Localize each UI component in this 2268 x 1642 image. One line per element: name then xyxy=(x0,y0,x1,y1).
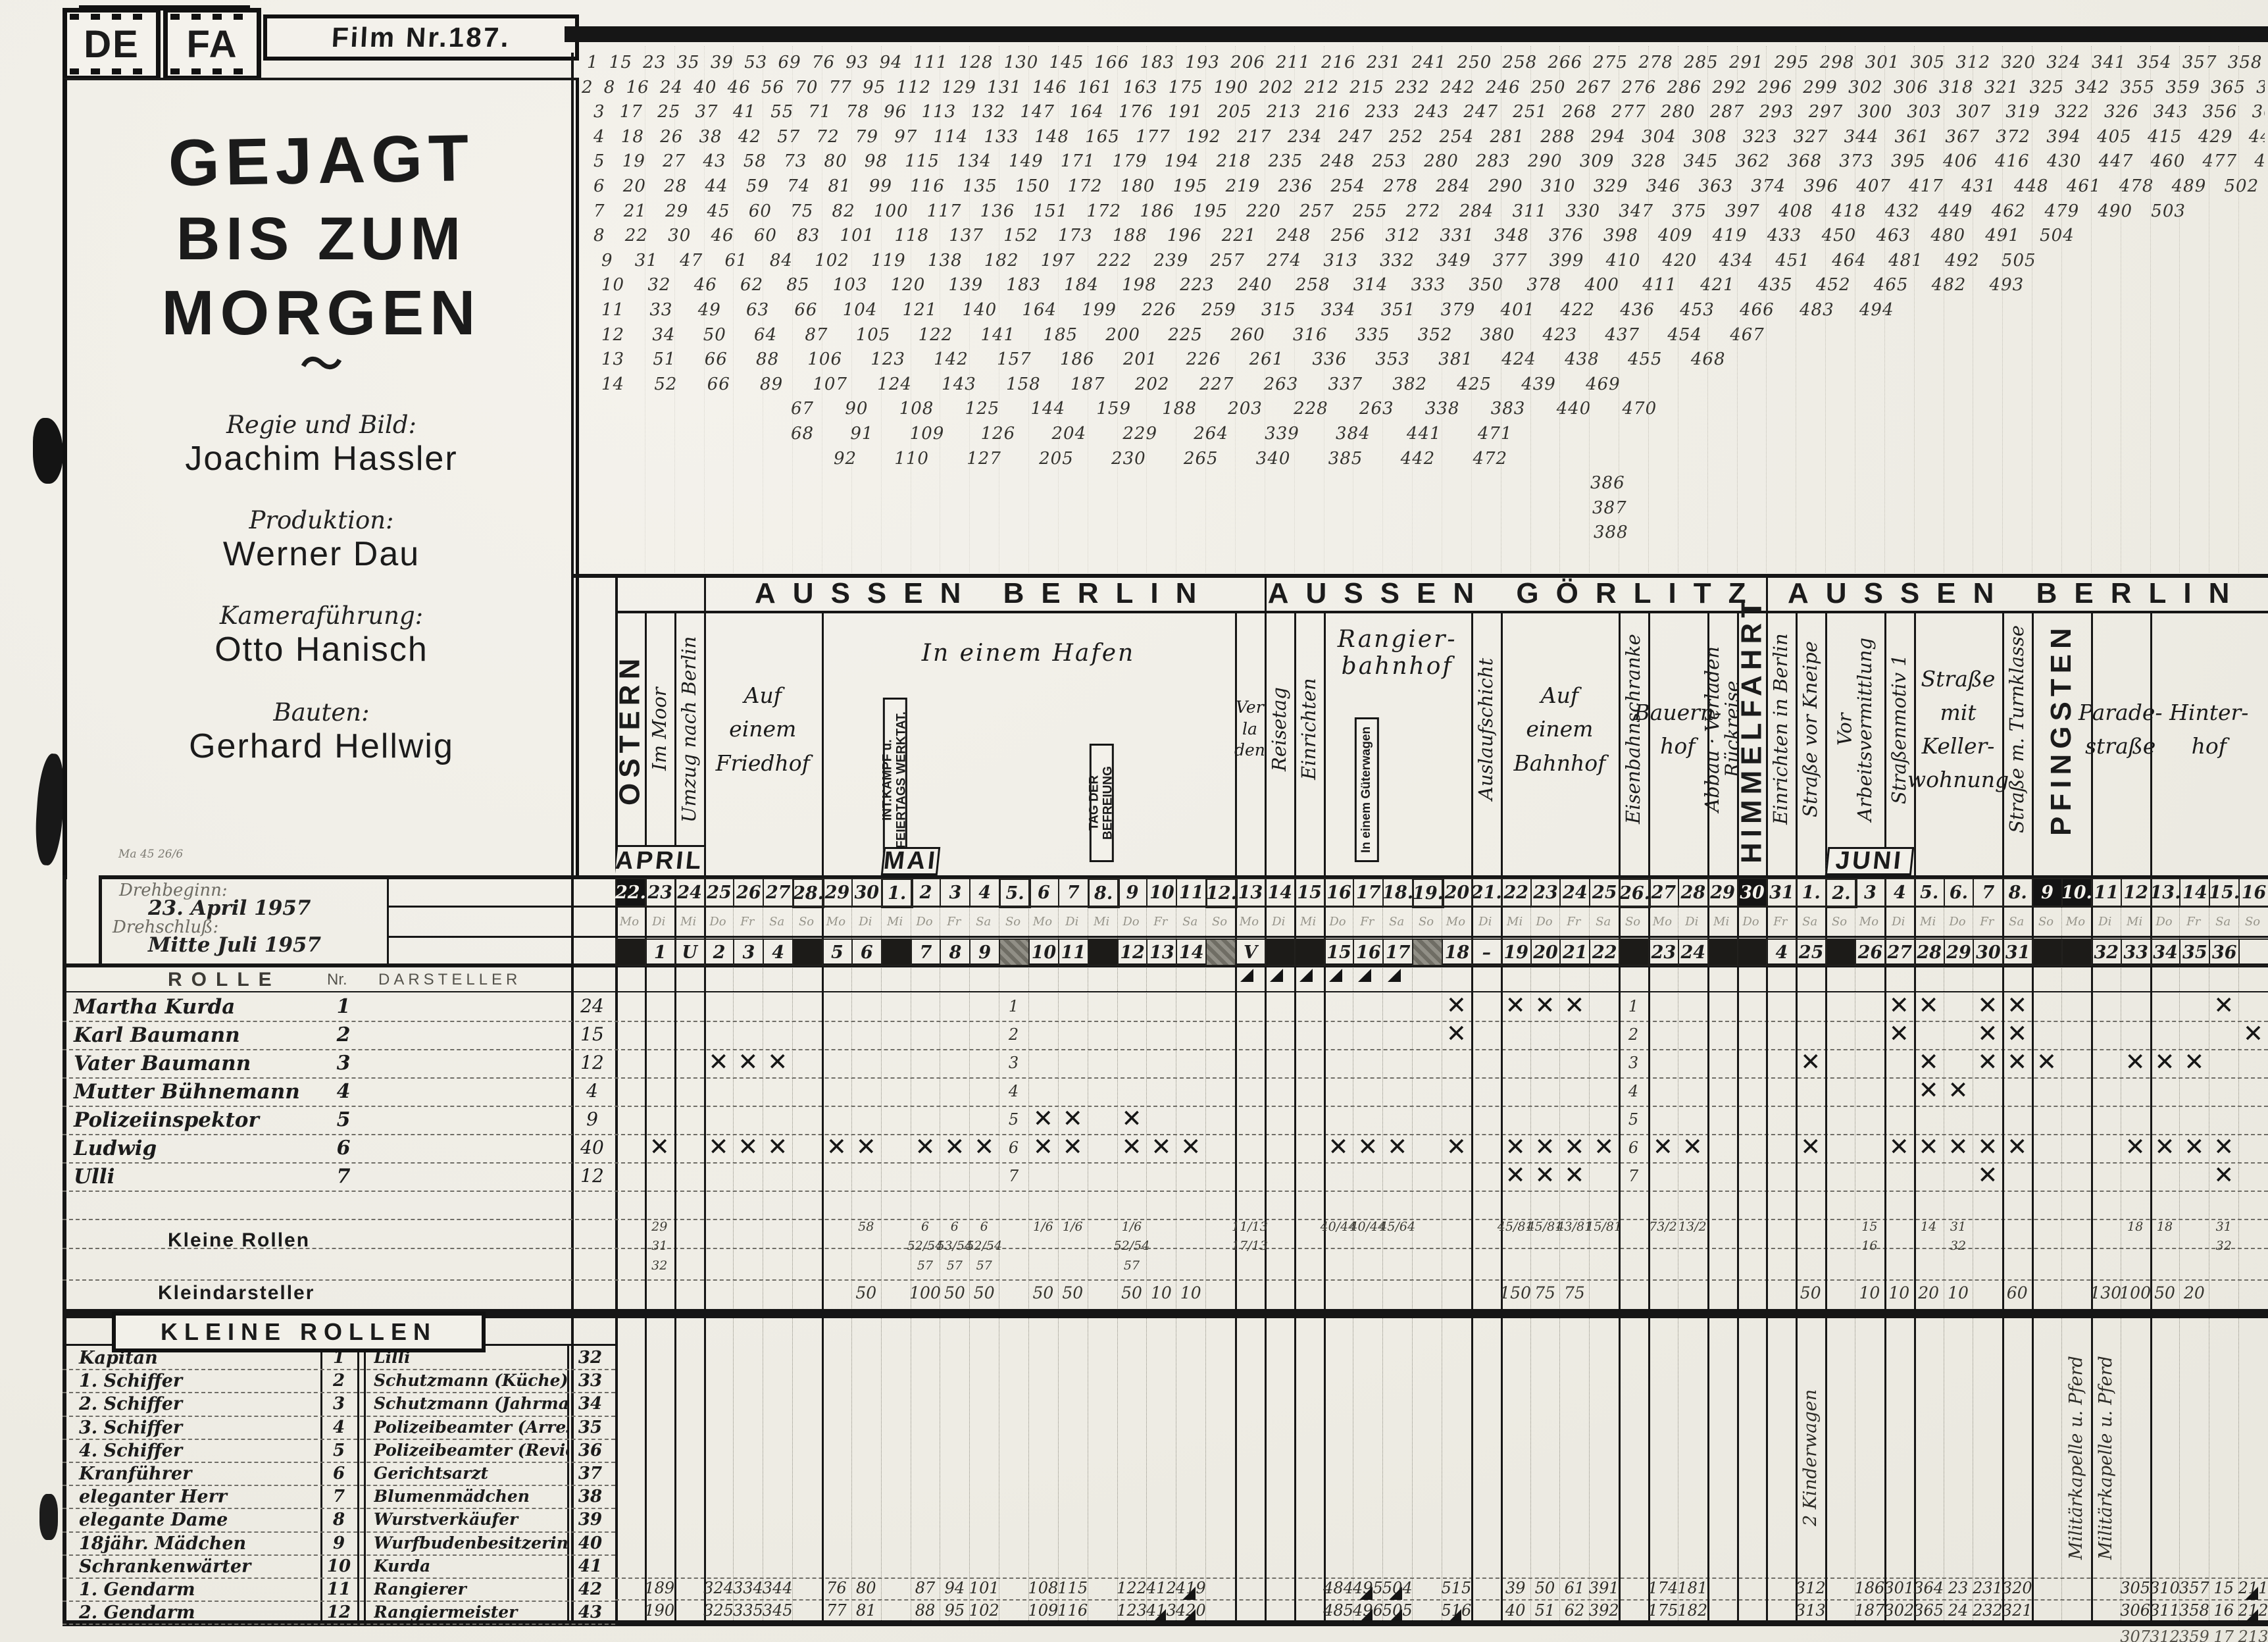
wochentag-cell: Mo xyxy=(615,908,643,935)
small-role-number: 32 xyxy=(570,1348,611,1368)
presence-x-mark: ✕ xyxy=(2209,1135,2238,1159)
grid-day-line xyxy=(1205,46,1207,573)
scene-column-label: Im Moor xyxy=(645,613,674,845)
presence-x-mark: ✕ xyxy=(911,1135,940,1159)
list-row-line xyxy=(63,1554,615,1556)
presence-x-mark: ✕ xyxy=(1914,1078,1944,1102)
role-row-line xyxy=(63,1106,2268,1107)
small-role-name: 1. Gendarm xyxy=(79,1579,316,1600)
bottom-schedule-cell: 320 xyxy=(1997,1579,2037,1597)
drehtag-cell xyxy=(1412,938,1443,966)
scene-inner-box-label: TAG DER BEFREIUNG xyxy=(1090,744,1114,862)
schedule-mark-triangle xyxy=(1359,1609,1373,1622)
schedule-mark-triangle xyxy=(2245,1609,2258,1622)
grid-day-line xyxy=(1353,877,1354,1624)
presence-x-mark: ✕ xyxy=(2002,1021,2032,1046)
presence-x-mark: ✕ xyxy=(733,1050,763,1074)
wochentag-cell: Sa xyxy=(1796,908,1824,935)
role-number: 5 xyxy=(327,1108,360,1131)
kalendertag-cell: 31 xyxy=(1766,878,1797,907)
presence-x-mark: ✕ xyxy=(1884,993,1914,1017)
role-row-line xyxy=(63,1021,2268,1022)
grid-day-line xyxy=(1058,46,1059,573)
wochentag-cell: Sa xyxy=(1589,908,1617,935)
scene-column-label: Straße vor Kneipe xyxy=(1796,613,1825,845)
kalendertag-cell: 3 xyxy=(940,878,970,907)
shot-number-row: 14 52 66 89 107 124 143 158 187 202 227 … xyxy=(601,374,1621,394)
scene-column-label: Auf einem Friedhof xyxy=(704,613,822,845)
drehtag-cell: 10 xyxy=(1028,938,1059,966)
presence-x-mark: ✕ xyxy=(2002,993,2032,1017)
grid-day-line xyxy=(1855,46,1856,573)
grid-day-line xyxy=(1442,877,1443,1624)
wochentag-cell: Fr xyxy=(1146,908,1174,935)
kleine-rollen-cell: 31 32 xyxy=(2205,1218,2242,1256)
grid-day-line xyxy=(645,46,646,573)
presence-x-mark: ✕ xyxy=(1028,1106,1058,1131)
rule xyxy=(99,875,102,966)
drehtag-cell xyxy=(1619,938,1650,966)
kalendertag-cell: 29 xyxy=(1707,878,1738,907)
presence-x-mark: ✕ xyxy=(969,1135,999,1159)
role-index-number: 2 xyxy=(1619,1025,1648,1044)
vertical-note: 2 Kinderwagen xyxy=(1798,1349,1823,1566)
drehtag-cell: 31 xyxy=(2002,938,2033,966)
kalendertag-cell: 25 xyxy=(1589,878,1620,907)
scene-column-label: Rangier- bahnhof xyxy=(1324,613,1471,692)
kalendertag-cell: 16 xyxy=(1324,878,1355,907)
drehtag-cell: 6 xyxy=(851,938,882,966)
small-role-name: Polizeibeamter (Arrestzelle) xyxy=(374,1418,568,1437)
presence-x-mark: ✕ xyxy=(2209,993,2238,1017)
bottom-schedule-cell: 313 xyxy=(1790,1601,1830,1620)
presence-x-mark: ✕ xyxy=(1353,1135,1382,1159)
wochentag-cell: Di xyxy=(1265,908,1293,935)
kalendertag-cell: 25 xyxy=(704,878,735,907)
drehtag-cell: 9 xyxy=(969,938,1000,966)
list-row-line xyxy=(63,1369,615,1370)
wochentag-cell: Do xyxy=(911,908,939,935)
drehtag-cell: 14 xyxy=(1176,938,1207,966)
kleindarsteller-cell: 60 xyxy=(2000,1283,2034,1302)
drehtag-cell: 21 xyxy=(1559,938,1590,966)
small-role-name: Wurfbudenbesitzerin xyxy=(374,1533,568,1552)
kalendertag-cell: 19. xyxy=(1412,878,1444,908)
small-role-number: 37 xyxy=(570,1464,611,1483)
role-index-number: 6 xyxy=(1619,1139,1648,1157)
drehtag-cell: 17 xyxy=(1382,938,1413,966)
kleindarsteller-cell: 50 xyxy=(1793,1283,1828,1302)
bottom-schedule-cell: 190 xyxy=(640,1601,680,1620)
shot-number-row: 1 15 23 35 39 53 69 76 93 94 111 128 130… xyxy=(587,53,2265,72)
drehtag-cell: U xyxy=(674,938,705,966)
kalendertag-cell: 30 xyxy=(851,878,882,907)
presence-x-mark: ✕ xyxy=(1559,1163,1589,1187)
kalendertag-cell: 5. xyxy=(1914,878,1945,907)
kalendertag-cell: 24 xyxy=(1559,878,1590,907)
presence-x-mark: ✕ xyxy=(1530,993,1560,1017)
wochentag-cell: Mo xyxy=(1855,908,1883,935)
grid-day-line xyxy=(2179,46,2180,573)
kalendertag-cell: 3 xyxy=(1855,878,1886,907)
bottom-schedule-cell: 116 xyxy=(1053,1601,1093,1620)
drehtag-cell: 8 xyxy=(940,938,970,966)
kleindarsteller-cell: 50 xyxy=(967,1283,1001,1302)
role-index-number: 4 xyxy=(999,1082,1028,1100)
scene-inner-box-label: In einem Güterwagen xyxy=(1355,717,1379,862)
drehtag-cell xyxy=(1265,938,1296,966)
role-number: 3 xyxy=(327,1052,360,1075)
small-role-number: 33 xyxy=(570,1371,611,1391)
role-shooting-days-count: 12 xyxy=(572,1052,612,1073)
schedule-mark-triangle xyxy=(1389,1609,1402,1622)
grid-day-line xyxy=(881,877,882,1624)
wochentag-cell: So xyxy=(2032,908,2060,935)
kalendertag-cell: 8. xyxy=(2002,878,2033,907)
role-name: Polizeiinspektor xyxy=(74,1108,324,1132)
presence-x-mark: ✕ xyxy=(940,1135,969,1159)
grid-day-line xyxy=(1501,46,1502,573)
wochentag-cell: Do xyxy=(1117,908,1146,935)
list-row-line xyxy=(63,1439,615,1440)
list-row-line xyxy=(63,1578,615,1579)
drehtag-cell xyxy=(2032,938,2063,966)
small-role-number: 11 xyxy=(322,1579,356,1599)
scene-column-label: Straße m. Turnklasse xyxy=(2002,613,2032,845)
section-band-label: AUSSEN BERLIN xyxy=(1766,577,2268,611)
presence-x-mark: ✕ xyxy=(2179,1050,2209,1074)
wochentag-cell: So xyxy=(999,908,1027,935)
presence-x-mark: ✕ xyxy=(1559,993,1589,1017)
wochentag-cell: Mi xyxy=(881,908,909,935)
kalendertag-cell: 8. xyxy=(1088,878,1120,908)
kleindarsteller-cell: 10 xyxy=(1173,1283,1208,1302)
shot-number-row: 13 51 66 88 106 123 142 157 186 201 226 … xyxy=(601,349,1726,369)
presence-x-mark: ✕ xyxy=(1117,1106,1147,1131)
role-index-number: 1 xyxy=(1619,997,1648,1015)
grid-day-line xyxy=(2032,46,2033,573)
grid-day-line xyxy=(1088,877,1089,1624)
grid-day-line xyxy=(763,46,764,573)
drehtag-cell: 26 xyxy=(1855,938,1886,966)
wochentag-cell: Fr xyxy=(1353,908,1381,935)
presence-x-mark: ✕ xyxy=(822,1135,851,1159)
grid-day-line xyxy=(1530,877,1532,1624)
role-name: Ludwig xyxy=(74,1137,324,1160)
schedule-mark-triangle xyxy=(1299,969,1313,982)
grid-day-line xyxy=(1796,46,1797,573)
drehtag-cell: 32 xyxy=(2091,938,2122,966)
role-index-number: 4 xyxy=(1619,1082,1648,1100)
wochentag-cell: Sa xyxy=(2209,908,2237,935)
wochentag-cell: So xyxy=(1412,908,1440,935)
small-role-name: 2. Schiffer xyxy=(79,1394,316,1414)
rule xyxy=(357,1344,359,1620)
kalendertag-cell: 26 xyxy=(733,878,764,907)
drehtag-cell: 18 xyxy=(1442,938,1473,966)
grid-day-line xyxy=(2061,46,2063,573)
kalendertag-cell: 29 xyxy=(822,878,853,907)
kalendertag-cell: 16 xyxy=(2238,878,2268,907)
presence-x-mark: ✕ xyxy=(851,1135,881,1159)
role-number: 2 xyxy=(327,1023,360,1046)
drehtag-cell: 3 xyxy=(733,938,764,966)
kleine-rollen-cell: 6 52/54 57 xyxy=(965,1218,1003,1275)
wochentag-cell: Do xyxy=(704,908,732,935)
role-shooting-days-count: 24 xyxy=(572,995,612,1017)
rule xyxy=(364,1344,366,1620)
wochentag-cell: So xyxy=(792,908,820,935)
shot-number-row: 4 18 26 38 42 57 72 79 97 114 133 148 16… xyxy=(593,127,2265,147)
scene-inner-box-label: INT.KAMPF u. FEIERTAGS WERKTAT. xyxy=(883,698,907,862)
grid-day-line xyxy=(1737,46,1738,573)
scene-column-label: Einrichten in Berlin xyxy=(1766,613,1796,845)
kalendertag-cell: 22 xyxy=(1501,878,1532,907)
section-band-label: AUSSEN BERLIN xyxy=(704,577,1265,611)
wochentag-cell: Di xyxy=(1678,908,1706,935)
role-index-number: 2 xyxy=(999,1025,1028,1044)
role-shooting-days-count: 40 xyxy=(572,1137,612,1158)
scene-column-label: Vor Arbeitsvermittlung xyxy=(1825,613,1884,845)
kleindarsteller-cell: 50 xyxy=(849,1283,884,1302)
role-shooting-days-count: 12 xyxy=(572,1165,612,1187)
vertical-note: Militärkapelle u. Pferd xyxy=(2064,1349,2088,1566)
presence-x-mark: ✕ xyxy=(2238,1021,2268,1046)
list-row-line xyxy=(63,1531,615,1533)
wochentag-cell: Di xyxy=(645,908,673,935)
presence-x-mark: ✕ xyxy=(2179,1135,2209,1159)
kalendertag-cell: 13. xyxy=(2150,878,2181,907)
schedule-mark-triangle xyxy=(1388,969,1401,982)
grid-day-line xyxy=(940,46,941,573)
drehtag-cell: 2 xyxy=(704,938,735,966)
wochentag-cell: Mo xyxy=(1028,908,1057,935)
small-role-name: Rangiermeister xyxy=(374,1603,568,1622)
grid-day-line xyxy=(792,877,794,1624)
role-index-number: 3 xyxy=(1619,1054,1648,1072)
presence-x-mark: ✕ xyxy=(1648,1135,1678,1159)
wochentag-cell: Fr xyxy=(1766,908,1794,935)
wochentag-cell: Di xyxy=(851,908,880,935)
small-role-name: Kurda xyxy=(374,1556,568,1576)
grid-day-line xyxy=(851,877,853,1624)
shot-number-row: 11 33 49 63 66 104 121 140 164 199 226 2… xyxy=(601,300,1894,320)
grid-day-line xyxy=(2150,46,2152,573)
presence-x-mark: ✕ xyxy=(1117,1135,1147,1159)
grid-day-line xyxy=(792,46,794,573)
kalendertag-cell: 27 xyxy=(1648,878,1679,907)
schedule-mark-triangle xyxy=(1448,1609,1461,1622)
kalendertag-cell: 21. xyxy=(1471,878,1502,907)
kalendertag-cell: 6. xyxy=(1944,878,1975,907)
small-role-name: 3. Schiffer xyxy=(79,1418,316,1438)
kalendertag-cell: 2. xyxy=(1825,878,1857,908)
shot-number-row: 92 110 127 205 230 265 340 385 442 472 xyxy=(834,449,1507,469)
role-number: 6 xyxy=(327,1137,360,1160)
wochentag-cell: Do xyxy=(1737,908,1765,935)
schedule-mark-triangle xyxy=(1359,1587,1373,1600)
kleindarsteller-cell: 50 xyxy=(1055,1283,1090,1302)
presence-x-mark: ✕ xyxy=(1796,1050,1825,1074)
drehtag-cell: 24 xyxy=(1678,938,1709,966)
grid-day-line xyxy=(1559,46,1561,573)
kalendertag-cell: 14 xyxy=(2179,878,2210,907)
drehtag-cell: 28 xyxy=(1914,938,1945,966)
kleine-rollen-cell: 15 16 xyxy=(1851,1218,1888,1256)
drehtag-cell: 5 xyxy=(822,938,853,966)
kalendertag-cell: 6 xyxy=(1028,878,1059,907)
drehtag-cell xyxy=(1737,938,1768,966)
wochentag-cell: So xyxy=(1619,908,1647,935)
small-role-number: 6 xyxy=(322,1464,356,1483)
scene-column-label: Auf einem Bahnhof xyxy=(1501,613,1619,845)
small-role-number: 39 xyxy=(570,1510,611,1529)
presence-x-mark: ✕ xyxy=(1796,1135,1825,1159)
bottom-schedule-cell: 80 xyxy=(846,1579,886,1597)
wochentag-cell: Fr xyxy=(2179,908,2207,935)
wochentag-cell: Sa xyxy=(1176,908,1204,935)
drehtag-cell xyxy=(881,938,912,966)
small-role-number: 35 xyxy=(570,1418,611,1437)
grid-day-line xyxy=(1382,46,1384,573)
presence-x-mark: ✕ xyxy=(1973,993,2002,1017)
role-shooting-days-count: 9 xyxy=(572,1108,612,1130)
small-role-number: 34 xyxy=(570,1394,611,1414)
grid-day-line xyxy=(1944,46,1945,573)
bottom-schedule-cell: 182 xyxy=(1673,1601,1713,1620)
role-number: 7 xyxy=(327,1165,360,1188)
grid-day-line xyxy=(1825,46,1827,573)
bottom-schedule-cell: 81 xyxy=(846,1601,886,1620)
small-role-name: 2. Gendarm xyxy=(79,1603,316,1623)
drehtag-cell xyxy=(2238,938,2268,966)
drehtag-cell xyxy=(2061,938,2092,966)
scene-column-label: Abbau · Verladen Rückreise xyxy=(1707,613,1737,845)
drehtag-cell: 30 xyxy=(1973,938,2003,966)
role-name: Ulli xyxy=(74,1165,324,1189)
wochentag-cell: Mi xyxy=(1088,908,1116,935)
scene-column-label: Ver la den xyxy=(1235,613,1265,845)
small-role-number: 3 xyxy=(322,1394,356,1414)
row-line xyxy=(63,1248,2268,1249)
kleine-rollen-cell: 1/6 xyxy=(1054,1218,1092,1237)
kalendertag-cell: 11 xyxy=(2091,878,2122,907)
bottom-schedule-cell: 181 xyxy=(1673,1579,1713,1597)
presence-x-mark: ✕ xyxy=(1973,1163,2002,1187)
presence-x-mark: ✕ xyxy=(704,1135,734,1159)
role-name: Vater Baumann xyxy=(74,1052,324,1075)
drehtag-cell: 20 xyxy=(1530,938,1561,966)
wochentag-cell: Mo xyxy=(1442,908,1470,935)
kleine-rollen-row-label: Kleine Rollen xyxy=(168,1229,310,1252)
kalendertag-cell: 4 xyxy=(1884,878,1915,907)
drehtag-cell: 23 xyxy=(1648,938,1679,966)
drehtag-cell: 11 xyxy=(1058,938,1089,966)
drehtag-cell: 13 xyxy=(1146,938,1177,966)
presence-x-mark: ✕ xyxy=(1324,1135,1353,1159)
bottom-schedule-cell: 312 xyxy=(1790,1579,1830,1597)
role-name: Martha Kurda xyxy=(74,995,324,1019)
list-row-line xyxy=(63,1601,615,1602)
kalendertag-cell: 14 xyxy=(1265,878,1296,907)
grid-day-line xyxy=(2061,877,2063,1624)
grid-day-line xyxy=(1028,877,1030,1624)
presence-x-mark: ✕ xyxy=(2032,1050,2061,1074)
grid-day-line xyxy=(1530,46,1532,573)
wochentag-cell: Di xyxy=(2091,908,2119,935)
wochentag-cell: So xyxy=(1825,908,1853,935)
kalendertag-cell: 9 xyxy=(2032,878,2063,907)
bottom-schedule-cell: 391 xyxy=(1584,1579,1624,1597)
shot-number-row: 3 17 25 37 41 55 71 78 96 113 132 147 16… xyxy=(593,102,2265,122)
wochentag-cell: Mo xyxy=(2061,908,2090,935)
role-index-number: 1 xyxy=(999,997,1028,1015)
grid-day-line xyxy=(1146,46,1147,573)
presence-x-mark: ✕ xyxy=(1973,1135,2002,1159)
kalendertag-cell: 27 xyxy=(763,878,794,907)
schedule-mark-triangle xyxy=(1358,969,1371,982)
kleindarsteller-cell: 75 xyxy=(1557,1283,1592,1302)
schedule-grid-layer: 1 15 23 35 39 53 69 76 93 94 111 128 130… xyxy=(0,0,2268,1642)
shot-number-row: 5 19 27 43 58 73 80 98 115 134 149 171 1… xyxy=(593,151,2265,171)
role-name: Karl Baumann xyxy=(74,1023,324,1047)
shot-number-row: 9 31 47 61 84 102 119 138 182 197 222 23… xyxy=(601,251,2036,270)
presence-x-mark: ✕ xyxy=(2002,1135,2032,1159)
drehtag-cell xyxy=(792,938,823,966)
scene-column-label: OSTERN xyxy=(615,613,645,845)
row-line xyxy=(615,1599,2268,1601)
shot-number-row: 8 22 30 46 60 83 101 118 137 152 173 188… xyxy=(593,226,2075,245)
presence-x-mark: ✕ xyxy=(1442,1021,1471,1046)
role-shooting-days-count: 4 xyxy=(572,1080,612,1102)
grid-day-line xyxy=(1471,46,1473,573)
grid-day-line xyxy=(1914,46,1915,573)
grid-day-line xyxy=(1382,877,1384,1624)
scene-column-label: Einrichten xyxy=(1294,613,1324,845)
presence-x-mark: ✕ xyxy=(1501,1163,1530,1187)
kleine-rollen-header-label: KLEINE ROLLEN xyxy=(161,1318,437,1346)
presence-x-mark: ✕ xyxy=(1914,993,1944,1017)
presence-x-mark: ✕ xyxy=(1028,1135,1058,1159)
presence-x-mark: ✕ xyxy=(1530,1163,1560,1187)
drehtag-cell: 15 xyxy=(1324,938,1355,966)
small-role-name: Blumenmädchen xyxy=(374,1487,568,1506)
role-index-number: 6 xyxy=(999,1139,1028,1157)
kleine-rollen-cell: 29 31 32 xyxy=(641,1218,678,1275)
presence-x-mark: ✕ xyxy=(1944,1078,1973,1102)
rule xyxy=(63,875,66,1626)
kleine-rollen-header-box: KLEINE ROLLEN xyxy=(112,1312,486,1352)
small-role-number: 38 xyxy=(570,1487,611,1506)
shot-number-row: 10 32 46 62 85 103 120 139 183 184 198 2… xyxy=(601,275,2024,295)
drehtag-cell xyxy=(1205,938,1236,966)
kleine-rollen-cell: 18 xyxy=(2146,1218,2184,1237)
small-role-number: 42 xyxy=(570,1579,611,1599)
kleine-rollen-cell: 13/2 xyxy=(1674,1218,1711,1237)
list-row-line xyxy=(63,1485,615,1486)
small-role-name: Polizeibeamter (Revier) xyxy=(374,1441,568,1460)
kleindarsteller-cell: 10 xyxy=(1941,1283,1976,1302)
wochentag-cell: Di xyxy=(1058,908,1086,935)
grid-day-line xyxy=(763,877,764,1624)
presence-x-mark: ✕ xyxy=(1973,1050,2002,1074)
role-index-number: 7 xyxy=(1619,1167,1648,1185)
grid-day-line xyxy=(733,877,734,1624)
wochentag-cell: Mi xyxy=(674,908,703,935)
presence-x-mark: ✕ xyxy=(2209,1163,2238,1187)
small-role-number: 36 xyxy=(570,1441,611,1460)
kalendertag-cell: 7 xyxy=(1058,878,1089,907)
